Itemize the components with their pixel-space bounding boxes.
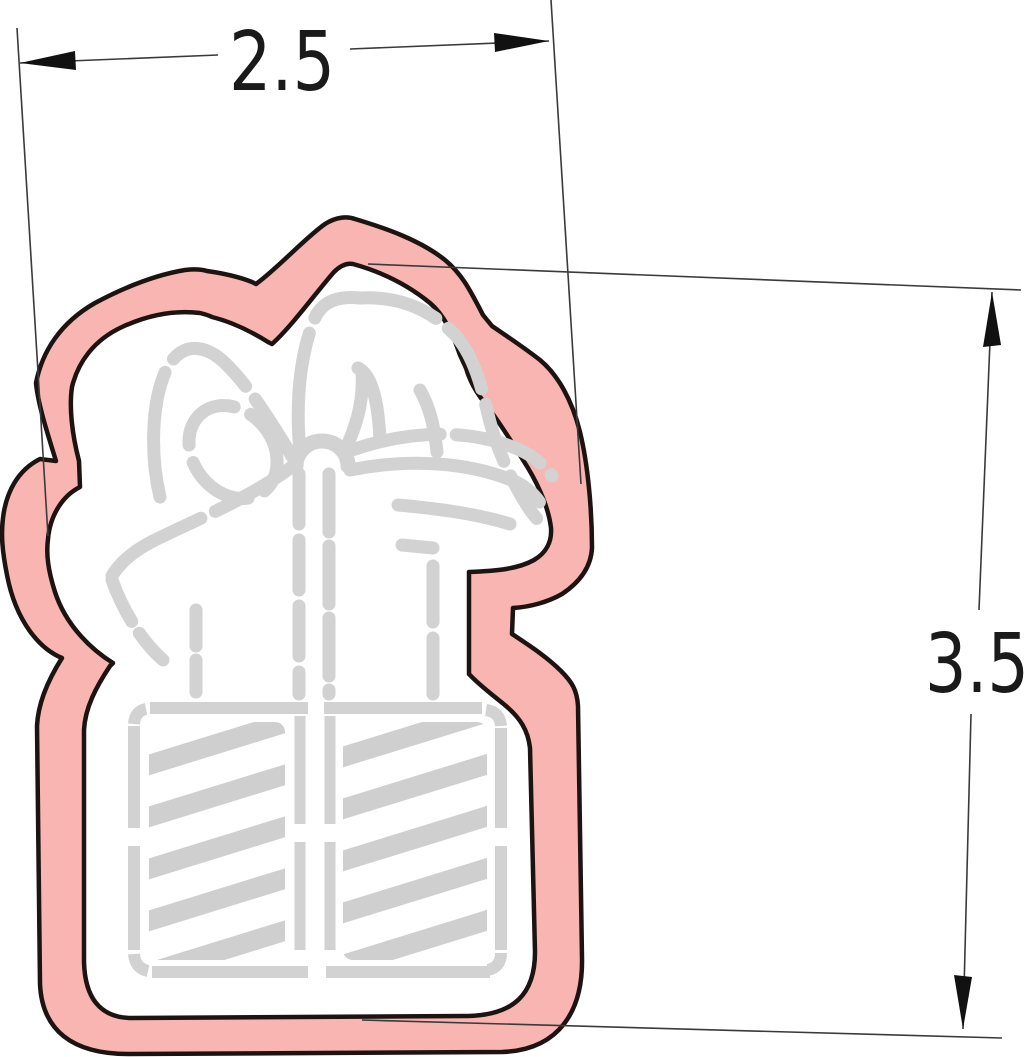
drawing-canvas: 2.5 3.5	[0, 0, 1030, 1057]
bow-right-tail-tip	[402, 545, 433, 548]
arrow-up-icon	[983, 292, 1001, 347]
arrow-down-icon	[954, 975, 972, 1029]
arrow-right-icon	[494, 33, 549, 52]
width-dimension-label: 2.5	[229, 15, 335, 110]
cookie-cutter-dimension-drawing: 2.5 3.5	[0, 0, 1030, 1057]
arrow-left-icon	[20, 51, 76, 70]
height-dimension-label: 3.5	[925, 617, 1029, 712]
extension-line-left	[17, 28, 48, 536]
